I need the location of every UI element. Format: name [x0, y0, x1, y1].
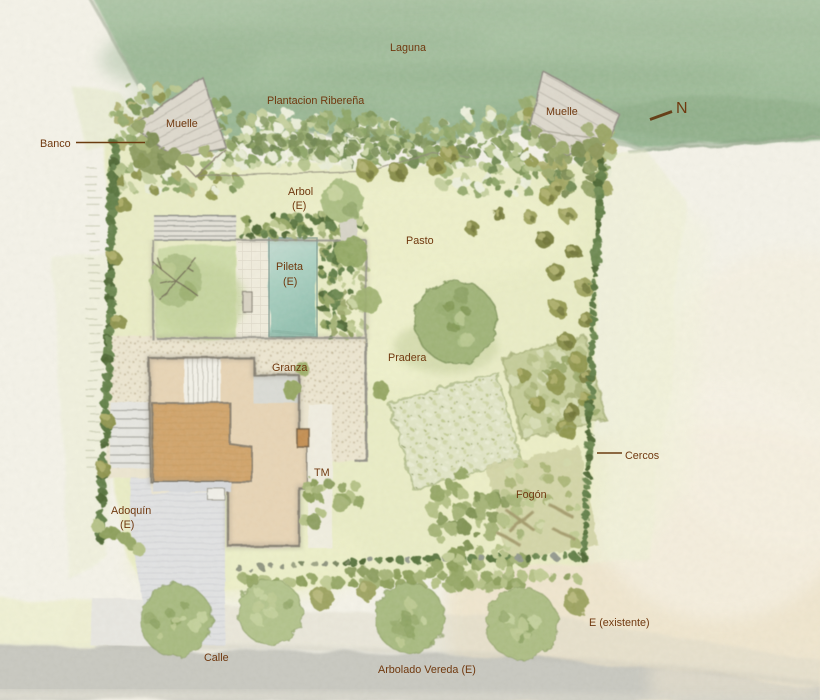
svg-text:Arbolado Vereda (E): Arbolado Vereda (E) — [378, 664, 476, 676]
svg-text:Plantacion Ribereña: Plantacion Ribereña — [267, 95, 364, 107]
svg-text:Banco: Banco — [40, 138, 71, 150]
svg-text:E (existente): E (existente) — [589, 617, 650, 629]
svg-text:(E): (E) — [292, 200, 306, 212]
svg-text:N: N — [676, 100, 688, 117]
svg-text:Muelle: Muelle — [546, 106, 578, 118]
svg-text:Pasto: Pasto — [406, 235, 434, 247]
svg-text:Granza: Granza — [272, 362, 307, 374]
svg-text:Muelle: Muelle — [166, 118, 198, 130]
svg-text:TM: TM — [314, 467, 330, 479]
svg-text:Calle: Calle — [204, 652, 229, 664]
svg-text:Arbol: Arbol — [288, 186, 313, 198]
svg-text:Pileta: Pileta — [276, 261, 303, 273]
svg-text:Adoquín: Adoquín — [111, 505, 151, 517]
svg-text:(E): (E) — [283, 276, 297, 288]
svg-text:Pradera: Pradera — [388, 352, 426, 364]
svg-text:(E): (E) — [120, 519, 134, 531]
svg-text:Laguna: Laguna — [390, 42, 426, 54]
svg-text:Fogón: Fogón — [516, 489, 547, 501]
svg-text:Cercos: Cercos — [625, 450, 660, 462]
